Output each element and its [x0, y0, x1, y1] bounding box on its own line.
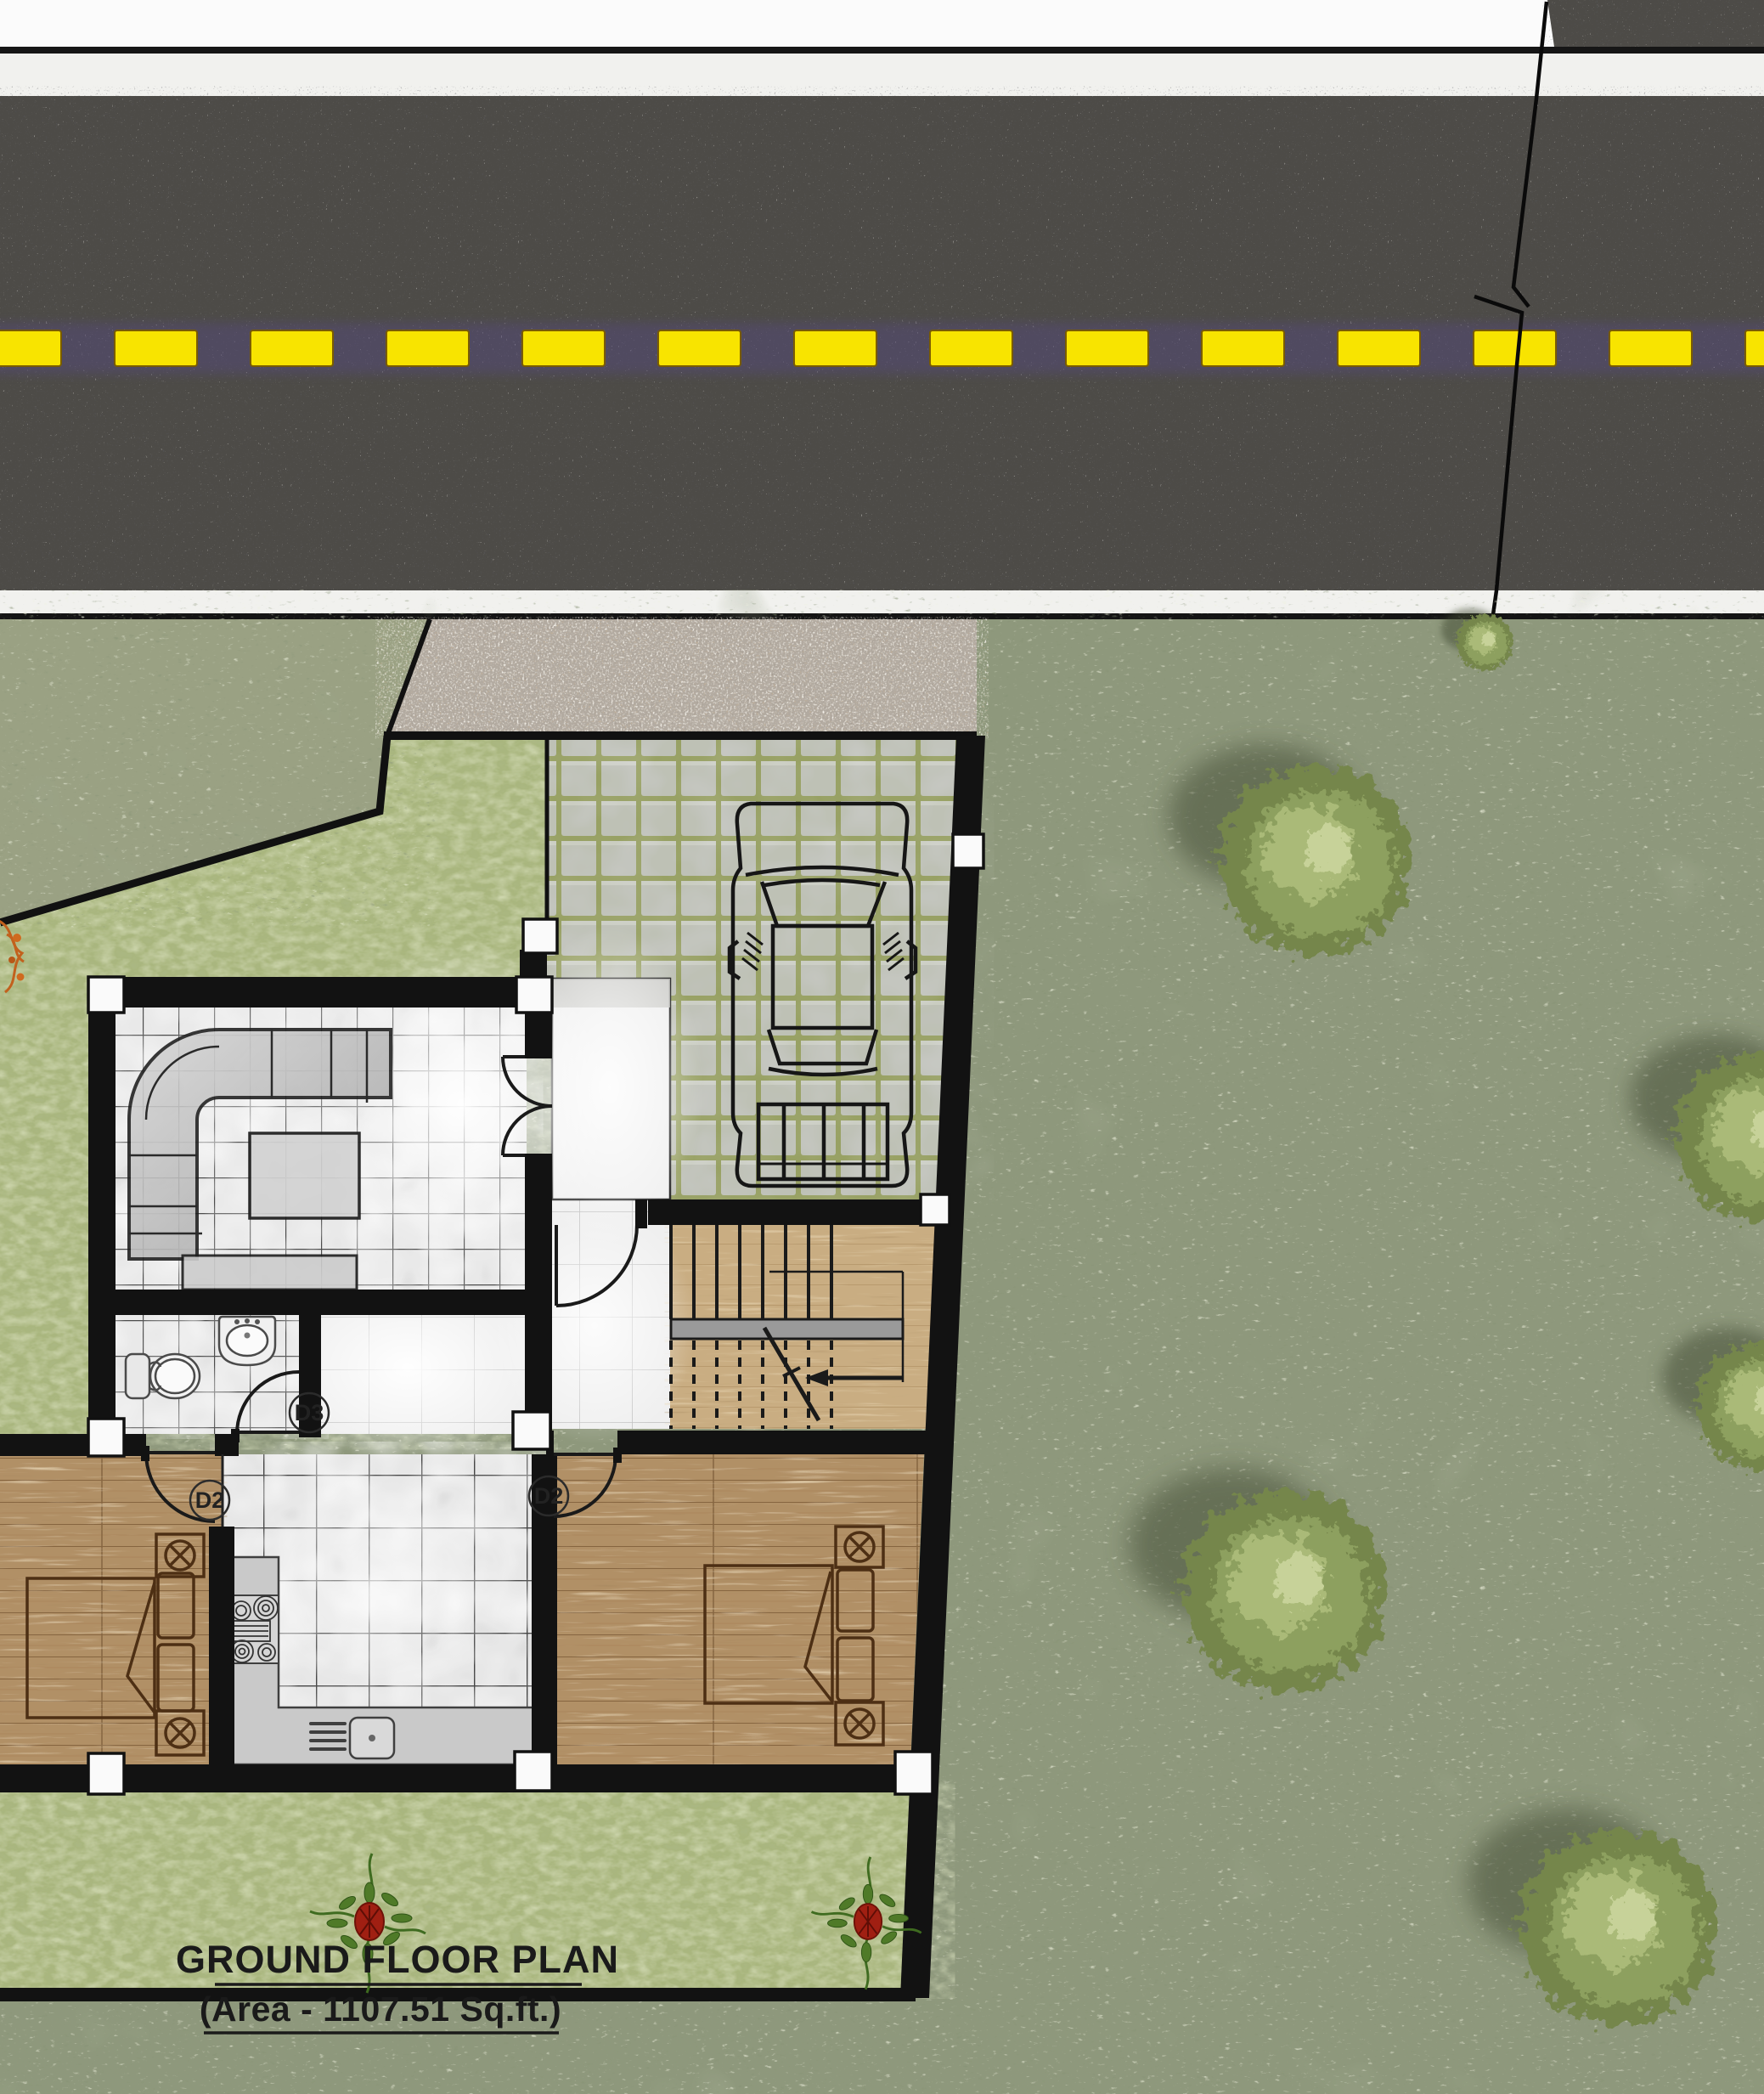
stair-railing	[671, 1319, 903, 1339]
column	[895, 1752, 933, 1794]
column	[515, 1752, 552, 1791]
lane-dash	[1609, 330, 1692, 366]
wall-stairhall-top	[648, 1199, 946, 1225]
column-gate-post	[523, 919, 557, 953]
title-block: GROUND FLOOR PLAN (Area - 1107.51 Sq.ft.…	[176, 1938, 619, 2033]
column	[88, 977, 124, 1013]
plan-title: GROUND FLOOR PLAN	[176, 1938, 619, 1981]
column-boundary	[953, 834, 983, 868]
wall-bedroom-left-right	[209, 1527, 234, 1764]
column	[513, 1412, 550, 1449]
lane-dash	[1745, 330, 1764, 366]
coffee-table	[250, 1133, 359, 1218]
road-shoulder-top	[0, 54, 1764, 96]
wall-living-right-lower	[525, 1155, 552, 1437]
column	[516, 977, 552, 1013]
lane-dash	[386, 330, 469, 366]
wall-left	[88, 1007, 116, 1454]
door-label-d2-left: D2	[195, 1487, 225, 1513]
road-top-margin	[0, 0, 1764, 47]
road-far-asphalt-corner	[1547, 0, 1764, 47]
bedroom-right-floor	[557, 1454, 924, 1764]
road-curb	[0, 590, 1764, 613]
tv-console	[183, 1256, 357, 1290]
door-label-d3: D3	[295, 1400, 324, 1425]
wall-bathroom-top	[116, 1290, 525, 1315]
lane-dash	[930, 330, 1012, 366]
gravel-apron	[387, 619, 977, 736]
wall-hall-bottom-b	[617, 1431, 944, 1454]
lane-dash	[794, 330, 876, 366]
lane-markings	[0, 323, 1764, 374]
lane-dash	[522, 330, 605, 366]
column	[88, 1753, 124, 1794]
wash-basin	[219, 1317, 275, 1365]
door-label-d2-right: D2	[534, 1483, 564, 1509]
road-edge-line-top	[0, 47, 1764, 54]
floor-plan-sheet: D2 D2 D3 GROUND FLOOR PLAN (Area - 1107.…	[0, 0, 1764, 2094]
lane-dash	[0, 330, 61, 366]
column	[88, 1419, 124, 1456]
toilet	[126, 1354, 200, 1398]
road	[0, 0, 1764, 633]
wall-top	[88, 977, 552, 1007]
wall-living-right-upper	[525, 1007, 552, 1057]
lane-dash	[115, 330, 197, 366]
wall-bottom	[0, 1764, 935, 1792]
road-edge-line-bottom	[0, 613, 1764, 619]
lane-dash	[251, 330, 333, 366]
ground-floor-plan-drawing: D2 D2 D3 GROUND FLOOR PLAN (Area - 1107.…	[0, 0, 1764, 2094]
column	[921, 1194, 950, 1225]
plan-area-subtitle: (Area - 1107.51 Sq.ft.)	[200, 1990, 561, 2029]
lane-dash	[1066, 330, 1148, 366]
lane-dash	[658, 330, 741, 366]
lane-dash	[1202, 330, 1284, 366]
lane-dash	[1474, 330, 1556, 366]
lane-dash	[1338, 330, 1420, 366]
